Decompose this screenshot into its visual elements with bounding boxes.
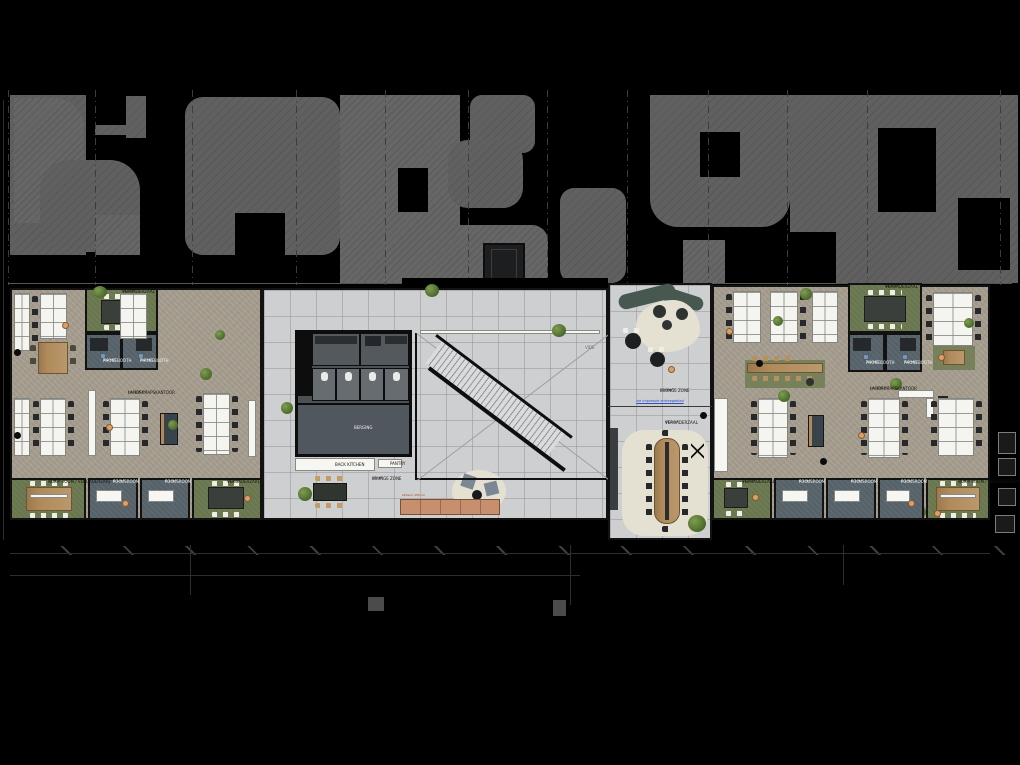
grid-line xyxy=(787,90,788,285)
room-area: 6,1 m² xyxy=(799,479,811,484)
plant-icon xyxy=(281,402,293,414)
plant-icon xyxy=(800,288,812,300)
stool-row xyxy=(315,476,345,481)
desk-bank xyxy=(40,293,67,339)
chair-row xyxy=(662,430,672,436)
desk-bank xyxy=(812,291,838,343)
core-kitchen-room xyxy=(360,333,409,366)
label-text: VIDE xyxy=(585,345,595,350)
column-dot xyxy=(756,360,763,367)
desk-bank xyxy=(40,398,66,456)
lobby-divider xyxy=(608,406,712,407)
desk-bank xyxy=(14,293,30,351)
pouf-round xyxy=(676,308,688,320)
room-area: 12,8 m² xyxy=(742,479,756,484)
locker-cabinet xyxy=(808,415,824,447)
meeting-table xyxy=(724,488,748,508)
booth-desk xyxy=(900,338,916,351)
grid-line xyxy=(627,90,628,285)
grid-line xyxy=(708,90,709,285)
whiteboard-strip xyxy=(88,390,96,456)
legend-square xyxy=(553,600,566,616)
plant-icon xyxy=(773,316,783,326)
room-area: 14,9 m² xyxy=(958,479,972,484)
wc-cell xyxy=(312,368,336,401)
chair-row xyxy=(751,401,757,455)
site-black-patch xyxy=(235,213,285,255)
room-area: 6,1 m² xyxy=(901,479,913,484)
chair-row xyxy=(662,526,672,532)
exterior-unit xyxy=(998,458,1016,476)
dimension-area xyxy=(0,540,1020,765)
dimension-extension xyxy=(570,545,571,605)
chair-row xyxy=(232,396,238,452)
wc-cell xyxy=(336,368,360,401)
dimension-extension xyxy=(3,100,4,540)
column-dot xyxy=(700,412,707,419)
chair-row xyxy=(926,295,932,343)
pouf-round xyxy=(653,305,666,318)
chair-row xyxy=(646,444,652,518)
room-area: 6,1 m² xyxy=(851,479,863,484)
grid-line xyxy=(296,90,297,285)
desk-bank xyxy=(14,398,30,456)
meeting-table xyxy=(864,296,906,322)
chair-row xyxy=(800,294,806,340)
grid-line xyxy=(1000,90,1001,285)
booth-desk xyxy=(90,338,108,351)
focus-desk xyxy=(96,490,122,502)
sideboard xyxy=(610,428,618,510)
person-figure xyxy=(244,495,251,502)
chair-row xyxy=(726,511,746,516)
grid-line xyxy=(468,90,469,285)
legend-square xyxy=(368,597,384,611)
reference-link: zie impressie entreegebied xyxy=(636,399,683,403)
plant-icon xyxy=(298,487,312,501)
person-figure xyxy=(726,328,733,335)
room-area: 43,9 m² xyxy=(665,420,679,425)
stool-row xyxy=(752,376,814,381)
room-area: 3,0 m² xyxy=(140,358,152,363)
grid-line xyxy=(192,90,193,285)
grid-line xyxy=(867,90,868,285)
plant-icon xyxy=(552,324,566,337)
roof-hatch-blob xyxy=(683,240,725,283)
wc-cell xyxy=(360,368,384,401)
booth-desk xyxy=(136,338,152,351)
plant-icon xyxy=(778,390,790,402)
stool-row xyxy=(315,503,345,508)
whiteboard-strip xyxy=(248,400,256,457)
chair-row xyxy=(33,401,39,453)
focus-desk xyxy=(834,490,860,502)
room-name: BERGING xyxy=(354,425,372,430)
toilet-icon xyxy=(321,372,328,381)
cafe-table xyxy=(625,333,641,349)
meeting-table xyxy=(208,487,244,509)
chair-row xyxy=(196,396,202,452)
grid-line xyxy=(8,90,9,285)
label-text: BACK KITCHEN xyxy=(335,462,364,467)
counter xyxy=(385,336,407,344)
plant-icon xyxy=(425,284,439,297)
site-black-patch xyxy=(958,198,1010,270)
pouf-round xyxy=(662,320,672,330)
chair-row xyxy=(142,401,148,453)
desk-bank xyxy=(120,293,147,339)
table-runner xyxy=(940,494,976,498)
quiet-room-table xyxy=(26,487,72,511)
person-figure xyxy=(752,494,759,501)
room-area: 3,0 m² xyxy=(103,358,115,363)
stove-icon xyxy=(365,336,381,346)
room-area: 12,8 m² xyxy=(227,479,241,484)
plant-icon xyxy=(93,286,107,298)
chair-row xyxy=(30,513,68,518)
plant-icon xyxy=(215,330,225,340)
site-black-patch xyxy=(398,168,428,212)
person-figure xyxy=(934,510,941,517)
chair-row xyxy=(68,401,74,453)
chair-row xyxy=(682,444,688,518)
chair-row xyxy=(868,290,902,295)
chair-row xyxy=(623,328,645,333)
plant-icon xyxy=(168,420,178,430)
exterior-unit xyxy=(998,432,1016,454)
room-area: 14,9 m² xyxy=(48,479,62,484)
grid-line xyxy=(547,90,548,285)
room-area: 3,0 m² xyxy=(866,360,878,365)
desk-bank xyxy=(758,398,788,458)
roof-hatch-blob xyxy=(560,188,626,283)
room-area: 14,5 m² xyxy=(885,284,899,289)
plant-icon xyxy=(688,515,706,532)
small-table xyxy=(943,350,965,365)
label-text: PANTRY xyxy=(390,461,405,466)
column-dot xyxy=(820,458,827,465)
dimension-line xyxy=(10,575,580,576)
roof-hatch-blob xyxy=(95,215,140,255)
bench-note: zitbank 450 cm xyxy=(402,493,425,497)
person-figure xyxy=(106,424,113,431)
plant-icon xyxy=(200,368,212,380)
booth-desk xyxy=(853,338,871,351)
person-figure xyxy=(908,500,915,507)
table-runner xyxy=(665,442,669,520)
room-area: 6,1 m² xyxy=(113,479,125,484)
chair-row xyxy=(931,401,937,453)
quiet-room-table xyxy=(936,487,980,511)
chair-row xyxy=(861,401,867,455)
service-core: BERGING xyxy=(295,330,412,457)
core-kitchen-room xyxy=(312,333,360,366)
chair-row xyxy=(940,513,976,518)
core-shaft xyxy=(298,333,312,396)
site-black-patch xyxy=(878,128,936,212)
glass-strip xyxy=(420,330,600,334)
person-figure xyxy=(122,500,129,507)
wing-area: ca. 130 m² xyxy=(128,390,147,395)
office-chair xyxy=(806,378,814,386)
toilet-icon xyxy=(345,372,352,381)
roof-hatch-blob xyxy=(126,96,146,138)
exterior-unit xyxy=(995,515,1015,533)
site-black-patch xyxy=(700,132,740,177)
room-area: 31,5 m² xyxy=(660,388,674,393)
room-area: 3,0 m² xyxy=(904,360,916,365)
chair-row xyxy=(975,295,981,343)
wing-area: ca. 130 m² xyxy=(870,386,889,391)
grid-line xyxy=(95,90,96,285)
desk-bank xyxy=(110,398,140,456)
room-area: 48 m² xyxy=(372,476,382,481)
table-runner xyxy=(30,494,68,498)
person-figure xyxy=(938,354,945,361)
room-area: 6,1 m² xyxy=(165,479,177,484)
person-figure xyxy=(668,366,675,373)
focus-desk xyxy=(886,490,910,502)
dimension-extension xyxy=(843,545,844,585)
desk-bank xyxy=(868,398,900,458)
chair-row xyxy=(902,401,908,455)
whiteboard-strip xyxy=(714,398,728,472)
bench xyxy=(400,499,500,515)
chair-row xyxy=(868,324,902,329)
floorplan-canvas: VERGADERZAAL 14,5 m² PHONEBOOTH 3,0 m² P… xyxy=(0,0,1020,765)
folding-stool-icon xyxy=(691,442,704,460)
chair-row xyxy=(30,345,36,371)
person-figure xyxy=(858,432,865,439)
credenza xyxy=(898,390,934,398)
desk-bank xyxy=(938,398,974,456)
toilet-icon xyxy=(369,372,376,381)
grid-line xyxy=(385,90,386,285)
chair-row xyxy=(976,401,982,453)
site-black-patch xyxy=(790,232,836,283)
chair-row xyxy=(212,512,240,517)
dimension-extension xyxy=(190,545,191,595)
toilet-icon xyxy=(393,372,400,381)
person-figure xyxy=(62,322,69,329)
wc-cell xyxy=(384,368,409,401)
chair-row xyxy=(70,345,76,371)
chair-row xyxy=(32,296,38,348)
desk-bank xyxy=(203,393,230,455)
kitchen-island xyxy=(313,483,347,501)
room-area: 14,5 m² xyxy=(122,289,136,294)
column-dot xyxy=(14,349,21,356)
column-dot xyxy=(14,432,21,439)
chair-row xyxy=(790,401,796,455)
desk-bank xyxy=(733,291,761,343)
focus-desk xyxy=(782,490,808,502)
wood-meeting-table xyxy=(38,342,68,374)
plant-icon xyxy=(964,318,974,328)
chair-row xyxy=(648,347,670,352)
counter xyxy=(315,336,357,344)
cafe-table xyxy=(650,352,665,367)
roof-hatch-blob xyxy=(448,140,523,208)
focus-desk xyxy=(148,490,174,502)
exterior-unit xyxy=(998,488,1016,506)
